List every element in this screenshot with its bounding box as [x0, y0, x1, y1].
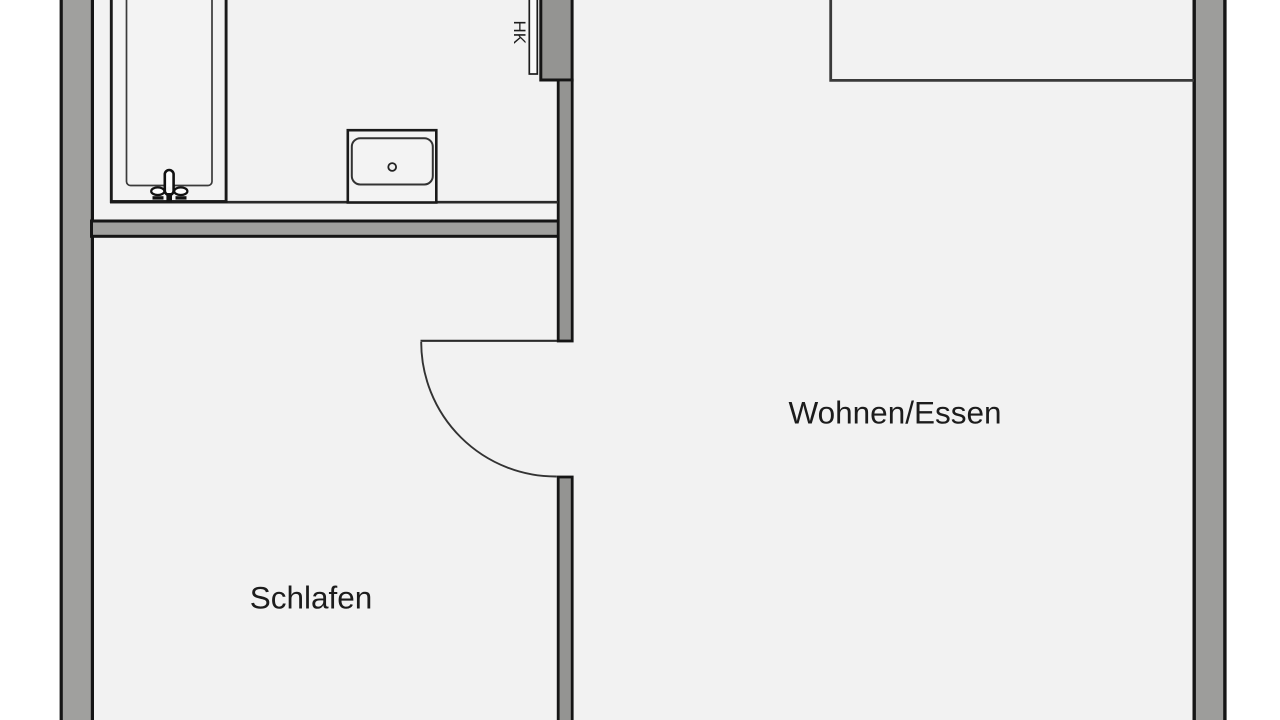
svg-text:Schlafen: Schlafen	[250, 580, 373, 616]
svg-text:Wohnen/Essen: Wohnen/Essen	[788, 395, 1001, 431]
svg-text:HK: HK	[510, 21, 529, 45]
